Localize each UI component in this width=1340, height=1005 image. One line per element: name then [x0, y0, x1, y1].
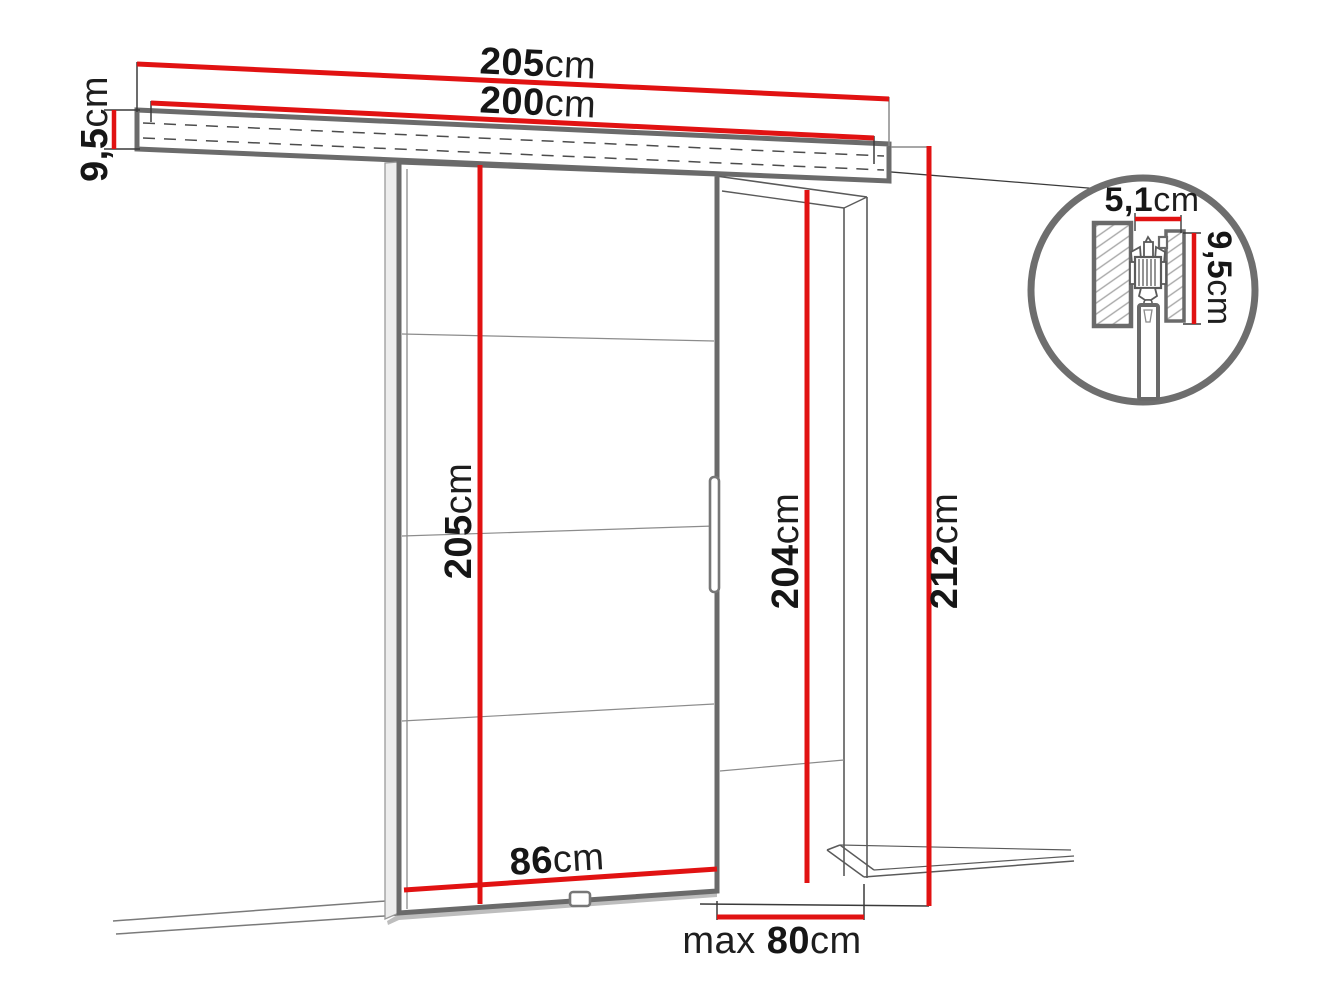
detail-door-leaf: [1139, 305, 1158, 399]
label-track-height: 9,5cm: [76, 76, 114, 182]
floor-guide: [570, 892, 590, 906]
door-panel: [385, 162, 719, 925]
detail-leader-line: [879, 171, 1100, 189]
label-door-width: 86cm: [508, 838, 605, 882]
label-detail-track-width: 5,1cm: [1104, 183, 1199, 217]
label-door-height: 205cm: [440, 463, 478, 580]
value: 205: [479, 40, 546, 85]
label-track-length: 200cm: [479, 81, 597, 124]
opening-wall-line: [720, 760, 844, 771]
label-total-height: 212cm: [926, 493, 964, 610]
detail-wall-block-left: [1094, 223, 1131, 326]
technical-drawing: [0, 0, 1340, 1005]
detail-block-tab: [1159, 237, 1167, 248]
detail-wall-block-right: [1166, 231, 1184, 321]
floor-lines: [113, 900, 399, 934]
label-opening-max-width: max 80cm: [682, 922, 861, 960]
label-detail-track-height: 9,5cm: [1202, 230, 1236, 325]
skirting-board: [827, 845, 1074, 877]
label-opening-height: 204cm: [767, 493, 805, 610]
door-handle: [710, 477, 719, 592]
sliding-door-dimension-diagram: 205cm 200cm 9,5cm 205cm 86cm 204cm 212cm…: [0, 0, 1340, 1005]
